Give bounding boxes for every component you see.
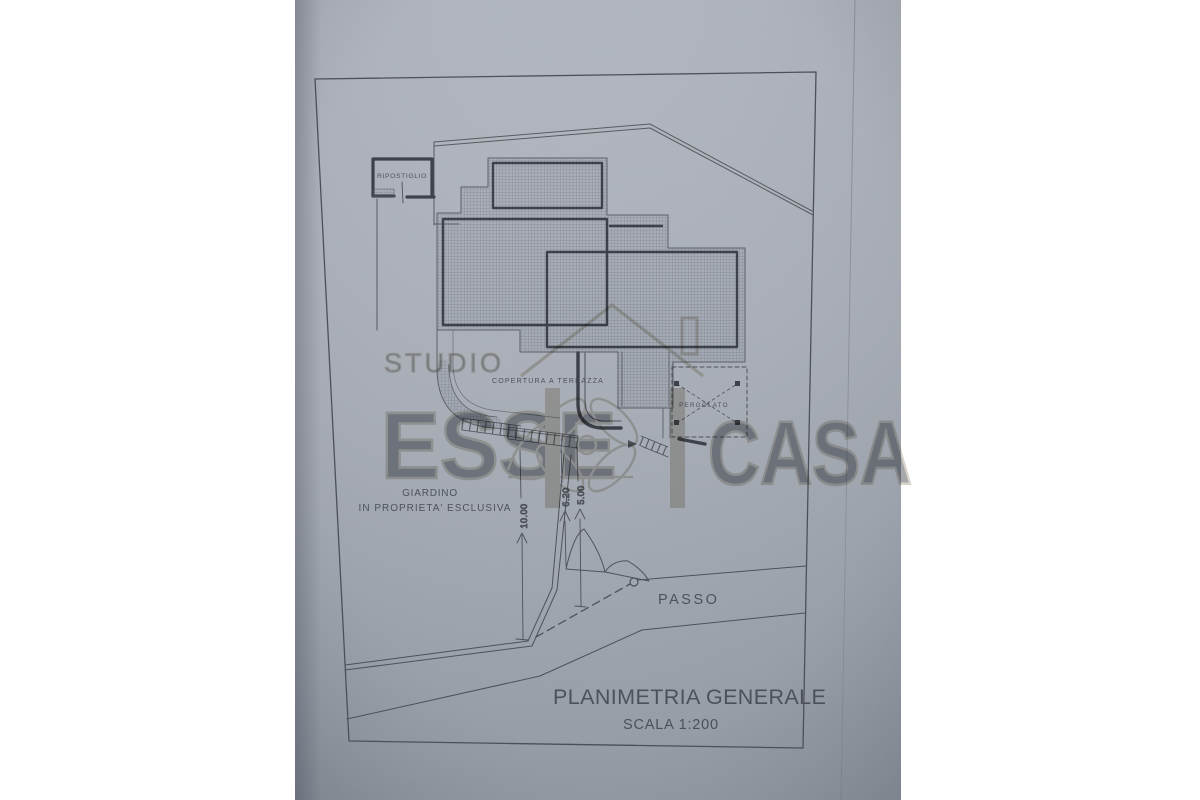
photo-of-site-plan: RIPOSTIGLIO bbox=[0, 0, 1200, 800]
site-plan-drawing: RIPOSTIGLIO bbox=[0, 0, 1200, 800]
photo-vignette bbox=[295, 0, 901, 800]
